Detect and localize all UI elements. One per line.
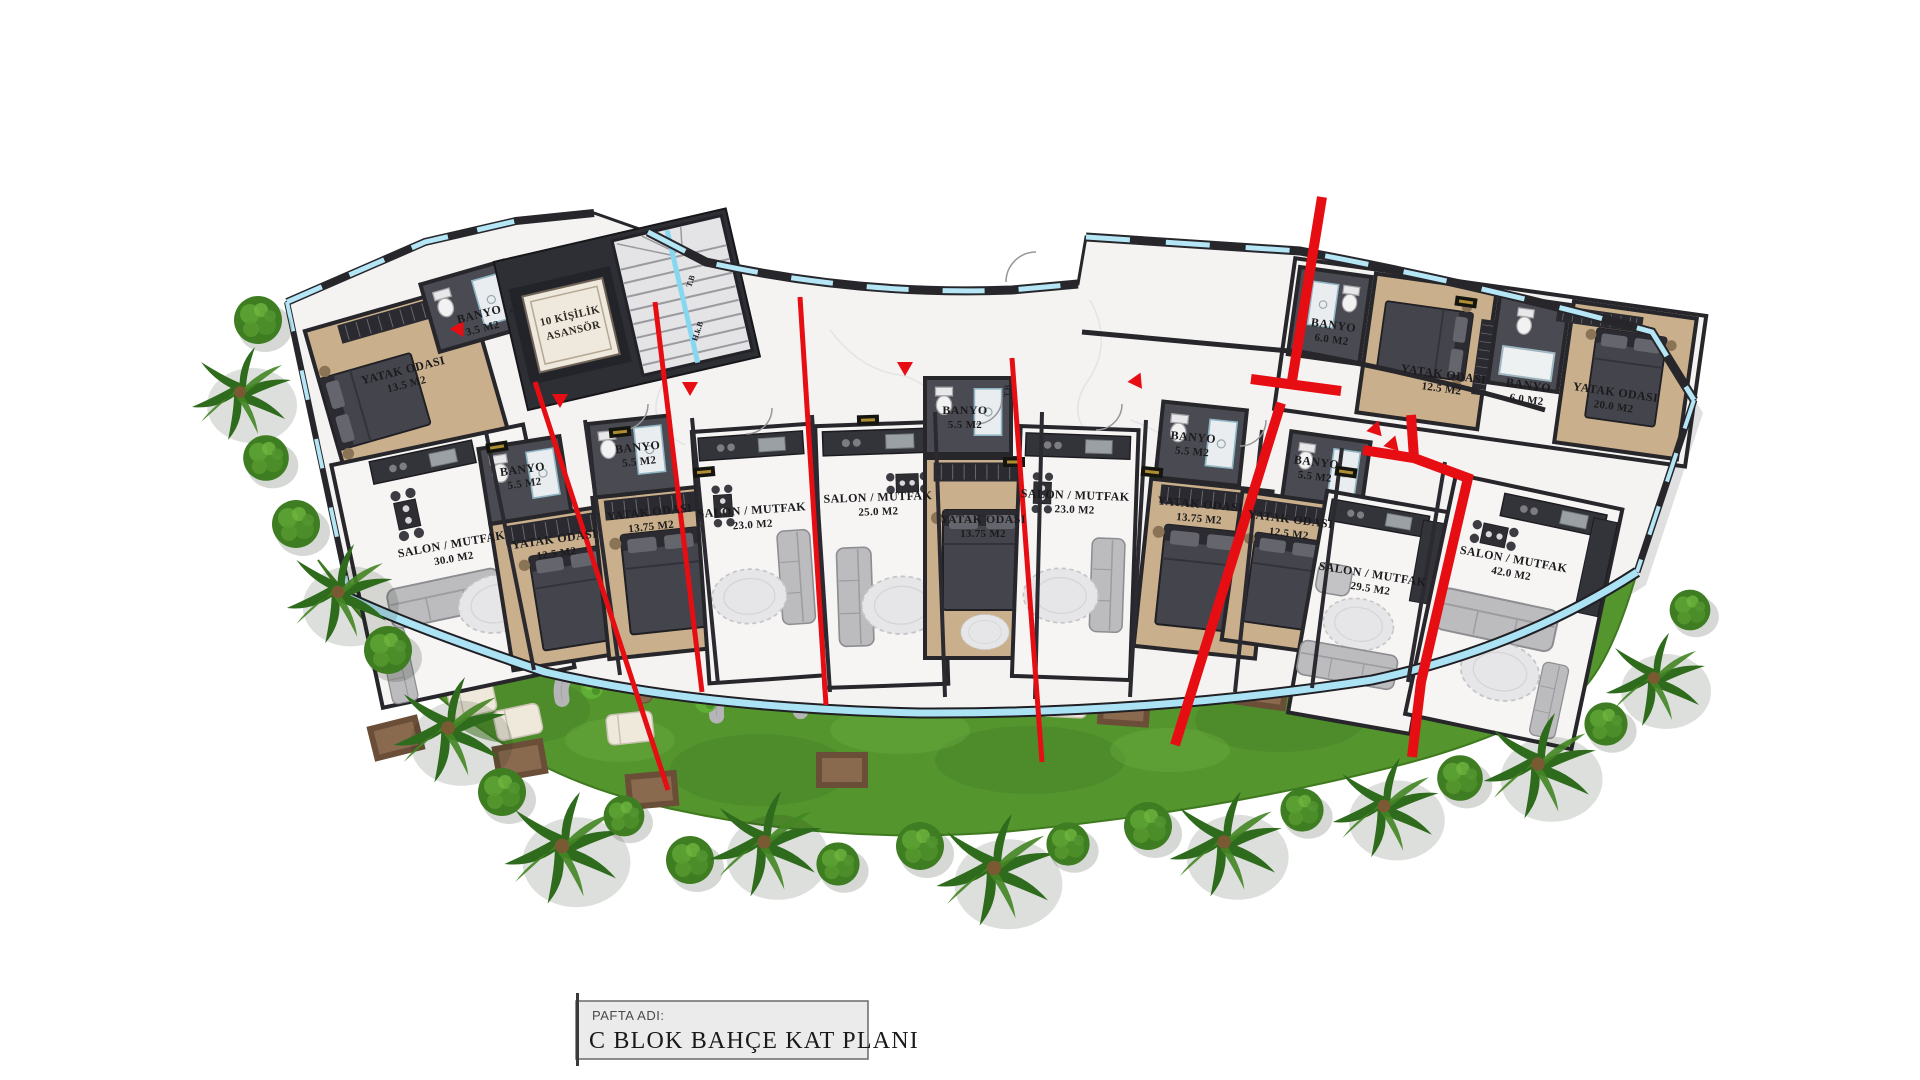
room-label: BANYO xyxy=(942,403,987,417)
floor-plan-page: 10 KİŞİLİK ASANSÖR xyxy=(0,0,1920,1080)
room-area-label: 13.75 M2 xyxy=(960,528,1006,540)
room-label: YATAK ODASI xyxy=(940,512,1026,526)
sheet-title: C BLOK BAHÇE KAT PLANI xyxy=(589,1028,919,1054)
room-area-label: 25.0 M2 xyxy=(858,505,899,518)
tree-icon xyxy=(1280,788,1332,838)
rug xyxy=(961,614,1009,649)
tree-icon xyxy=(243,435,298,488)
tree-icon xyxy=(666,836,724,892)
room-area-label: 23.0 M2 xyxy=(1054,503,1095,516)
kitchen-counter xyxy=(822,428,933,456)
tree-icon xyxy=(272,500,330,556)
sheet-name-label: PAFTA ADI: xyxy=(592,1008,664,1023)
room-area-label: 5.5 M2 xyxy=(948,419,982,431)
wall-tag: T.B xyxy=(1003,384,1012,397)
tree-icon xyxy=(816,842,868,892)
tree-icon xyxy=(1437,755,1492,808)
garden-mat xyxy=(816,752,868,788)
tree-icon xyxy=(1670,590,1719,638)
floor-plan-svg: 10 KİŞİLİK ASANSÖR xyxy=(0,0,1920,1080)
tree-icon xyxy=(234,296,292,352)
title-block: PAFTA ADI: C BLOK BAHÇE KAT PLANI xyxy=(576,993,919,1066)
palm-icon xyxy=(192,347,297,443)
sofa xyxy=(777,529,816,625)
